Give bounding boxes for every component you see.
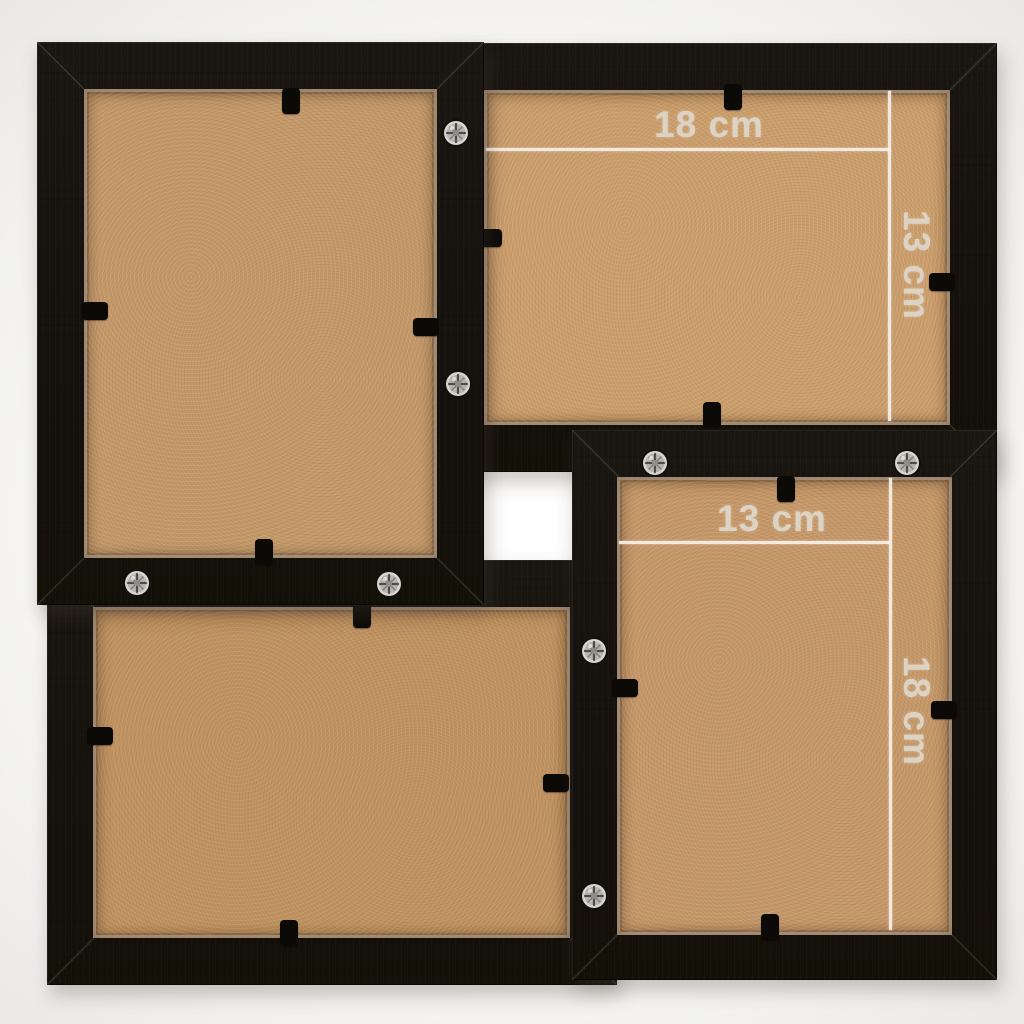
frame-bottom-right: 13 cm 18 cm [572,430,997,980]
miter-seam [950,43,997,90]
miter-seam [950,933,997,980]
miter-seam [37,42,84,89]
miter-seam [437,42,484,89]
retainer-clip [761,914,779,940]
retainer-clip [87,727,113,745]
height-dimension-label: 13 cm [895,210,937,320]
miter-seam [37,558,84,605]
miter-seam [47,938,94,985]
screw [640,448,670,478]
height-measure-line [888,91,891,421]
retainer-clip [612,679,638,697]
retainer-clip [255,539,273,565]
frame-top-left [37,42,484,605]
retainer-clip [777,476,795,502]
backing-board-top-left [84,89,437,558]
backing-board-bottom-left [93,607,570,938]
backing-board-bottom-right: 13 cm 18 cm [617,477,952,935]
retainer-clip [543,774,569,792]
screw [579,636,609,666]
retainer-clip [280,920,298,946]
miter-seam [437,558,484,605]
retainer-clip [82,302,108,320]
retainer-clip [931,701,957,719]
width-dimension-label: 13 cm [717,498,827,540]
backing-board-top-right: 18 cm 13 cm [484,90,950,425]
height-measure-line [889,478,892,930]
width-measure-line [486,148,890,151]
retainer-clip [413,318,439,336]
frame-top-right: 18 cm 13 cm [437,43,997,472]
miter-seam [572,933,619,980]
screw [122,568,152,598]
screw [892,448,922,478]
screw [441,118,471,148]
retainer-clip [282,88,300,114]
product-photo-collage-frame: 18 cm 13 cm 13 cm 18 cm [0,0,1024,1024]
retainer-clip [724,84,742,110]
retainer-clip [929,273,955,291]
screw [443,369,473,399]
retainer-clip [703,402,721,428]
width-dimension-label: 18 cm [654,104,764,146]
frame-bottom-left [47,560,617,985]
miter-seam [950,430,997,477]
width-measure-line [619,541,890,544]
screw [374,569,404,599]
miter-seam [572,430,619,477]
retainer-clip [353,602,371,628]
screw [579,881,609,911]
